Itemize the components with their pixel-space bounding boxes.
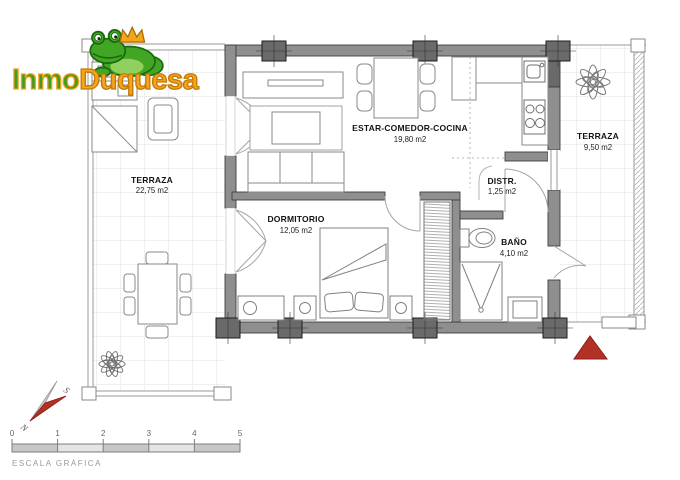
door-bedroom (385, 196, 420, 231)
coffee-table (272, 112, 320, 144)
pillow (354, 292, 383, 312)
logo-text: InmoDuquesa (12, 64, 198, 97)
scale-tick-4: 4 (192, 429, 197, 438)
scale-tick-1: 1 (55, 429, 60, 438)
compass-north-label: N (18, 421, 31, 434)
wall-bottom (225, 322, 560, 333)
terraza-right-rail-hatch (634, 45, 644, 322)
french-door-bedroom (226, 208, 235, 274)
shower (460, 262, 502, 320)
kitchen-hob (524, 100, 545, 134)
bano-area: 4,10 m2 (500, 249, 528, 258)
logo-text-inmo: Inmo (12, 64, 79, 96)
red-triangle-marker (574, 336, 607, 359)
logo-text-duquesa: Duquesa (79, 64, 198, 96)
scale-tick-5: 5 (238, 429, 243, 438)
wall-kitchen-distr (505, 152, 548, 161)
pillow (324, 292, 353, 312)
compass-south-label: S (62, 385, 72, 396)
bed (320, 228, 388, 318)
kitchen-sink (524, 61, 545, 82)
scale-tick-3: 3 (147, 429, 152, 438)
terraza-right-name: TERRAZA (577, 131, 619, 141)
dining-table (357, 58, 435, 118)
living-room: ESTAR-COMEDOR-COCINA 19,80 m2 (243, 57, 548, 192)
terraza-left-area: 22,75 m2 (136, 186, 169, 195)
scale-caption: ESCALA GRÁFICA (12, 459, 102, 468)
wardrobe (424, 202, 450, 320)
scale-tick-2: 2 (101, 429, 106, 438)
bano-name: BAÑO (501, 237, 527, 247)
floorplan-page: TERRAZA 22,75 m2 TERRAZA 9,50 m2 (0, 0, 680, 480)
toilet (460, 229, 495, 248)
wall-bedroom-bath (452, 200, 460, 322)
crown-icon (120, 27, 145, 42)
terraza-left-name: TERRAZA (131, 175, 173, 185)
logo: InmoDuquesa (8, 26, 228, 106)
bathroom: BAÑO 4,10 m2 (460, 229, 542, 323)
wall-bath-top (460, 211, 503, 219)
distribuidor: DISTR. 1,25 m2 (479, 166, 517, 200)
sofa (248, 152, 344, 192)
estar-area: 19,80 m2 (394, 135, 427, 144)
bedroom: DORMITORIO 12,05 m2 (238, 202, 450, 320)
compass: S N (18, 381, 72, 434)
distr-name: DISTR. (487, 176, 516, 186)
wall-living-bedroom (232, 192, 385, 200)
dormitorio-name: DORMITORIO (267, 214, 324, 224)
terraza-right-area: 9,50 m2 (584, 143, 612, 152)
distr-area: 1,25 m2 (488, 187, 516, 196)
scale-bar: 0 1 2 3 4 5 ESCALA GRÁFICA (10, 429, 243, 468)
dormitorio-area: 12,05 m2 (280, 226, 313, 235)
terraza-right: TERRAZA 9,50 m2 (560, 39, 646, 329)
washbasin (508, 297, 542, 322)
estar-name: ESTAR-COMEDOR-COCINA (352, 123, 468, 133)
scale-tick-0: 0 (10, 429, 15, 438)
window-kitchen (548, 150, 560, 190)
north-arrow-icon (30, 396, 66, 421)
